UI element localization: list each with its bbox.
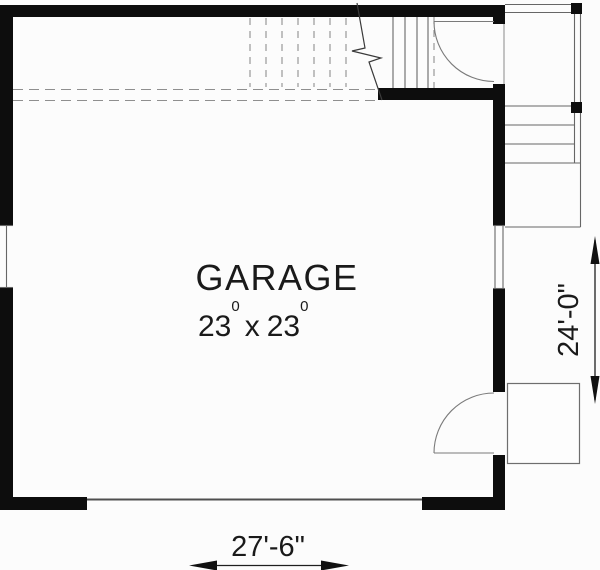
dimension-bottom-label: 27'-6" [231, 531, 305, 563]
arrow-up-icon [591, 236, 600, 264]
room-depth-sup: 0 [300, 298, 308, 315]
floor-plan: 27'-6" 24'-0" GARAGE 230x230 [0, 0, 600, 570]
dimension-right: 24'-0" [553, 236, 600, 404]
room-depth-value: 23 [267, 310, 300, 343]
arrow-left-icon [189, 561, 217, 570]
arrow-down-icon [591, 376, 600, 404]
deck-post [571, 102, 582, 113]
wall-right-mid-upper [493, 84, 505, 225]
overhead-floor-lines [13, 90, 378, 101]
wall-right-bottom [493, 455, 505, 510]
room-width-value: 23 [198, 310, 231, 343]
window-left [0, 226, 13, 288]
exterior-deck-and-steps [505, 3, 582, 227]
deck-post [571, 3, 582, 14]
arrow-right-icon [321, 561, 349, 570]
room-dimensions-label: 230x230 [198, 298, 308, 343]
door-swing-arc [434, 22, 494, 82]
room-width-sup: 0 [231, 298, 239, 315]
wall-left-lower [0, 287, 13, 510]
floor-plan-drawing: 27'-6" 24'-0" GARAGE 230x230 [0, 0, 600, 570]
staircase [250, 3, 434, 100]
wall-right-top [493, 5, 505, 24]
door-swing-arc [434, 393, 494, 453]
room-label: GARAGE [195, 257, 358, 298]
wall-top [0, 5, 505, 17]
wall-bottom-right [422, 497, 505, 510]
entry-door-top [434, 22, 504, 85]
side-door-bottom [434, 393, 494, 453]
room-dims-separator: x [245, 310, 260, 343]
dimension-right-label: 24'-0" [553, 283, 585, 357]
wall-bottom-left [0, 497, 87, 510]
wall-stair-landing [378, 88, 505, 100]
wall-right-mid-lower [493, 288, 505, 392]
wall-left-upper [0, 5, 13, 225]
window-right [493, 226, 505, 289]
exterior-stoop [508, 384, 580, 464]
stair-break-line [352, 3, 382, 100]
dimension-bottom: 27'-6" [189, 531, 349, 570]
